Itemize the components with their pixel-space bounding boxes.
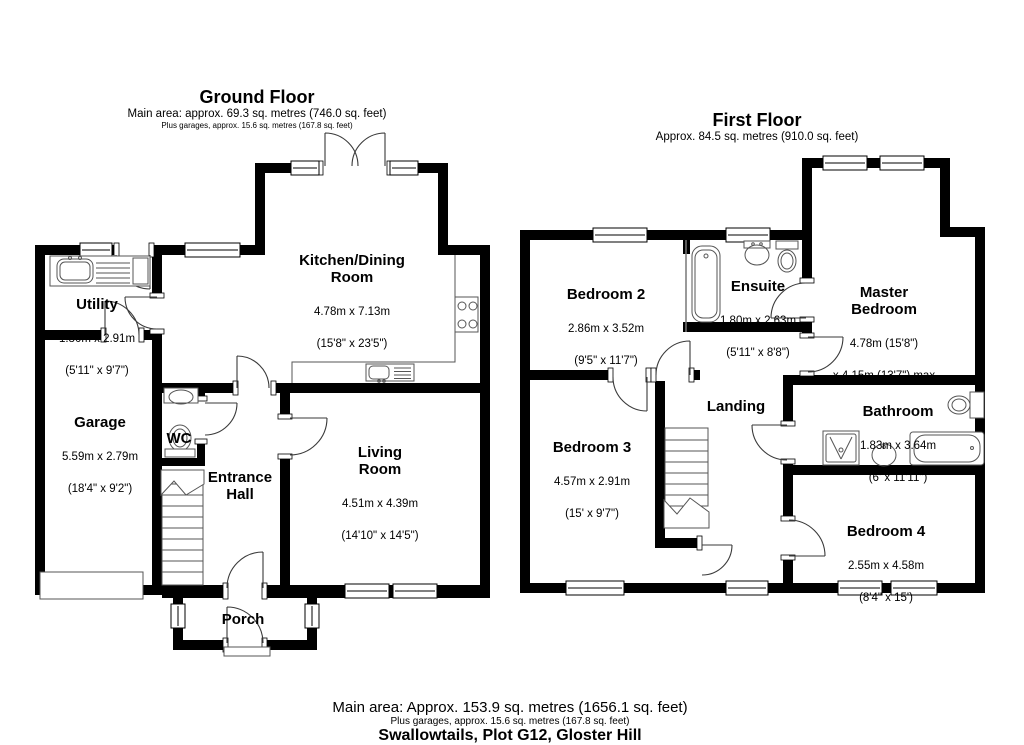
first-stairs: [664, 428, 709, 528]
bathroom-imperial: (6' x 11'11"): [860, 471, 936, 485]
ensuite-bath-fixture: [692, 246, 720, 322]
ensuite-name: Ensuite: [720, 279, 796, 296]
kitchen-dining-metric: 4.78m x 7.13m: [299, 305, 405, 319]
landing-name: Landing: [707, 399, 765, 416]
bathroom-name: Bathroom: [860, 404, 936, 421]
ground-floor-note: Plus garages, approx. 15.6 sq. metres (1…: [161, 121, 352, 131]
garage-name: Garage: [62, 415, 138, 432]
ensuite-imperial: (5'11" x 8'8"): [720, 346, 796, 360]
room-label-porch: Porch: [222, 594, 265, 647]
room-label-utility: Utility 1.80m x 2.91m (5'11" x 9'7"): [59, 279, 135, 397]
utility-name: Utility: [59, 297, 135, 314]
bedroom4-metric: 2.55m x 4.58m: [847, 559, 925, 573]
bathroom-toilet-fixture: [948, 392, 984, 418]
utility-metric: 1.80m x 2.91m: [59, 332, 135, 346]
garage-metric: 5.59m x 2.79m: [62, 450, 138, 464]
room-label-garage: Garage 5.59m x 2.79m (18'4" x 9'2"): [62, 397, 138, 515]
wc-name: WC: [167, 431, 192, 448]
floorplan-page: Ground Floor Main area: approx. 69.3 sq.…: [0, 0, 1024, 745]
room-label-wc: WC: [167, 413, 192, 466]
first-floor-title: First Floor: [713, 111, 802, 131]
garage-imperial: (18'4" x 9'2"): [62, 482, 138, 496]
master-bedroom-metric: 4.78m (15'8"): [833, 337, 935, 351]
ground-floor-title: Ground Floor: [200, 88, 315, 108]
bedroom2-metric: 2.86m x 3.52m: [567, 322, 645, 336]
bedroom3-imperial: (15' x 9'7"): [553, 507, 631, 521]
kitchen-dining-name: Kitchen/Dining Room: [299, 253, 405, 287]
bedroom3-metric: 4.57m x 2.91m: [553, 475, 631, 489]
bedroom2-imperial: (9'5" x 11'7"): [567, 354, 645, 368]
garage-door-fixture: [40, 572, 143, 599]
entrance-hall-name: Entrance Hall: [208, 470, 272, 504]
bedroom4-name: Bedroom 4: [847, 524, 925, 541]
bathroom-metric: 1.83m x 3.64m: [860, 439, 936, 453]
porch-name: Porch: [222, 612, 265, 629]
ensuite-metric: 1.80m x 2.63m: [720, 314, 796, 328]
bedroom2-name: Bedroom 2: [567, 287, 645, 304]
room-label-master-bedroom: Master Bedroom 4.78m (15'8") x 4.15m (13…: [833, 267, 935, 401]
porch-threshold: [224, 647, 270, 656]
room-label-bedroom3: Bedroom 3 4.57m x 2.91m (15' x 9'7"): [553, 422, 631, 540]
room-label-living-room: Living Room 4.51m x 4.39m (14'10" x 14'5…: [341, 427, 418, 561]
living-room-imperial: (14'10" x 14'5"): [341, 529, 418, 543]
room-label-bedroom2: Bedroom 2 2.86m x 3.52m (9'5" x 11'7"): [567, 269, 645, 387]
bedroom4-imperial: (8'4" x 15'): [847, 591, 925, 605]
ground-stairs: [161, 470, 204, 585]
kitchen-hob-fixture: [455, 297, 478, 332]
bedroom3-name: Bedroom 3: [553, 440, 631, 457]
room-label-entrance-hall: Entrance Hall: [208, 452, 272, 522]
ground-floor-subtitle: Main area: approx. 69.3 sq. metres (746.…: [128, 108, 387, 122]
room-label-bedroom4: Bedroom 4 2.55m x 4.58m (8'4" x 15'): [847, 506, 925, 624]
room-label-ensuite: Ensuite 1.80m x 2.63m (5'11" x 8'8"): [720, 261, 796, 379]
first-floor-subtitle: Approx. 84.5 sq. metres (910.0 sq. feet): [656, 131, 859, 145]
footer-main-area: Main area: Approx. 153.9 sq. metres (165…: [332, 699, 687, 717]
master-bedroom-imperial: x 4.15m (13'7") max: [833, 369, 935, 383]
living-room-name: Living Room: [341, 445, 418, 479]
room-label-kitchen-dining: Kitchen/Dining Room 4.78m x 7.13m (15'8"…: [299, 235, 405, 369]
room-label-bathroom: Bathroom 1.83m x 3.64m (6' x 11'11"): [860, 386, 936, 504]
footer-address: Swallowtails, Plot G12, Gloster Hill: [378, 726, 641, 745]
master-bedroom-name: Master Bedroom: [833, 285, 935, 319]
bathroom-shower-fixture: [823, 431, 859, 465]
kitchen-dining-imperial: (15'8" x 23'5"): [299, 337, 405, 351]
living-room-metric: 4.51m x 4.39m: [341, 497, 418, 511]
utility-imperial: (5'11" x 9'7"): [59, 364, 135, 378]
room-label-landing: Landing: [707, 381, 765, 434]
